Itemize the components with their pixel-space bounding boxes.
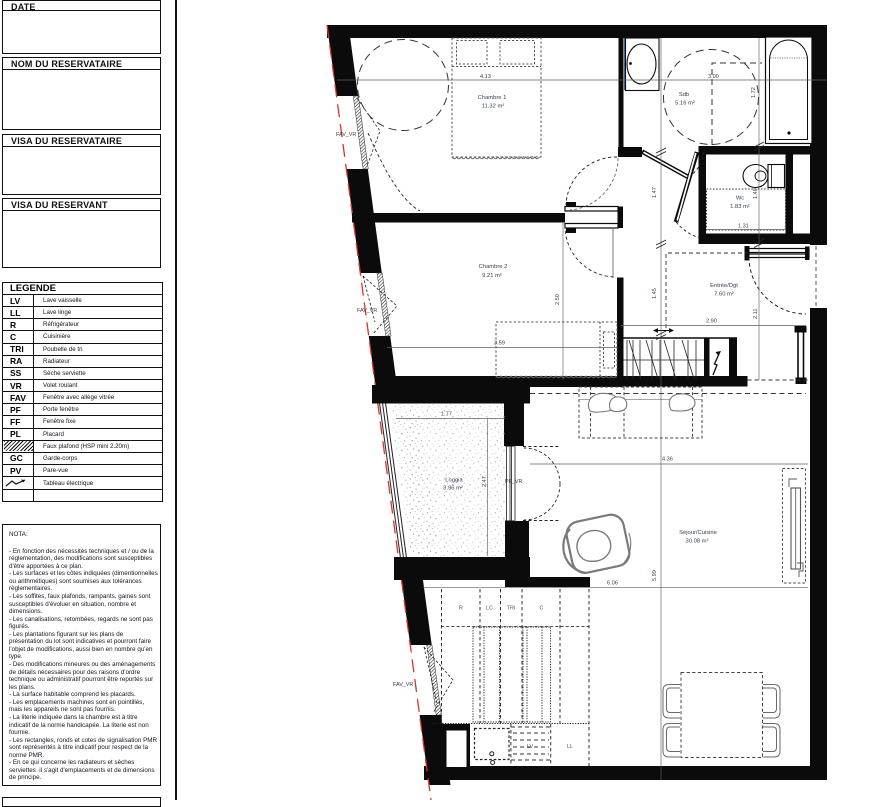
svg-text:1.31: 1.31 (738, 224, 749, 230)
svg-text:LV: LV (527, 744, 534, 750)
svg-text:2.47: 2.47 (482, 476, 488, 487)
svg-text:C: C (540, 606, 544, 612)
svg-text:4.13: 4.13 (480, 74, 491, 80)
svg-text:2.11: 2.11 (753, 309, 759, 319)
svg-text:FAV_VR: FAV_VR (336, 132, 356, 138)
svg-text:LC: LC (486, 606, 493, 612)
svg-text:3.00: 3.00 (708, 74, 719, 80)
svg-text:4.36: 4.36 (662, 457, 673, 463)
svg-text:30.08 m²: 30.08 m² (686, 539, 709, 545)
svg-text:1.45: 1.45 (652, 288, 658, 299)
svg-text:3.96 m²: 3.96 m² (443, 486, 463, 492)
svg-text:1.77: 1.77 (441, 412, 452, 418)
svg-text:2.50: 2.50 (555, 294, 561, 305)
svg-text:FAV_VR: FAV_VR (357, 308, 377, 314)
svg-text:Entrée/Dgt: Entrée/Dgt (710, 283, 738, 289)
svg-text:7.60 m²: 7.60 m² (714, 292, 734, 298)
svg-text:Sdb: Sdb (679, 92, 689, 98)
svg-text:1.72: 1.72 (751, 87, 757, 98)
svg-text:5.99: 5.99 (652, 570, 658, 581)
svg-text:Chambre 2: Chambre 2 (479, 264, 508, 270)
svg-text:Loggia: Loggia (445, 478, 463, 484)
svg-text:2.90: 2.90 (706, 319, 717, 325)
svg-text:Chambre 1: Chambre 1 (478, 95, 507, 101)
svg-text:6.06: 6.06 (607, 581, 618, 587)
svg-text:1.47: 1.47 (652, 187, 658, 198)
svg-text:Séjour/Cuisine: Séjour/Cuisine (679, 530, 717, 536)
svg-text:LL: LL (567, 744, 573, 750)
svg-text:FAV_VR: FAV_VR (393, 682, 413, 688)
svg-text:9.21 m²: 9.21 m² (482, 273, 502, 279)
svg-text:PF_VR: PF_VR (505, 479, 522, 485)
svg-text:Wc: Wc (736, 196, 744, 202)
svg-text:TRI: TRI (507, 606, 516, 612)
svg-text:3.59: 3.59 (494, 341, 505, 347)
svg-text:1.40: 1.40 (753, 188, 759, 199)
svg-text:11.32 m²: 11.32 m² (482, 104, 505, 110)
svg-text:R: R (459, 606, 463, 612)
svg-text:5.16 m²: 5.16 m² (675, 101, 695, 107)
svg-text:1.83 m²: 1.83 m² (730, 204, 750, 210)
